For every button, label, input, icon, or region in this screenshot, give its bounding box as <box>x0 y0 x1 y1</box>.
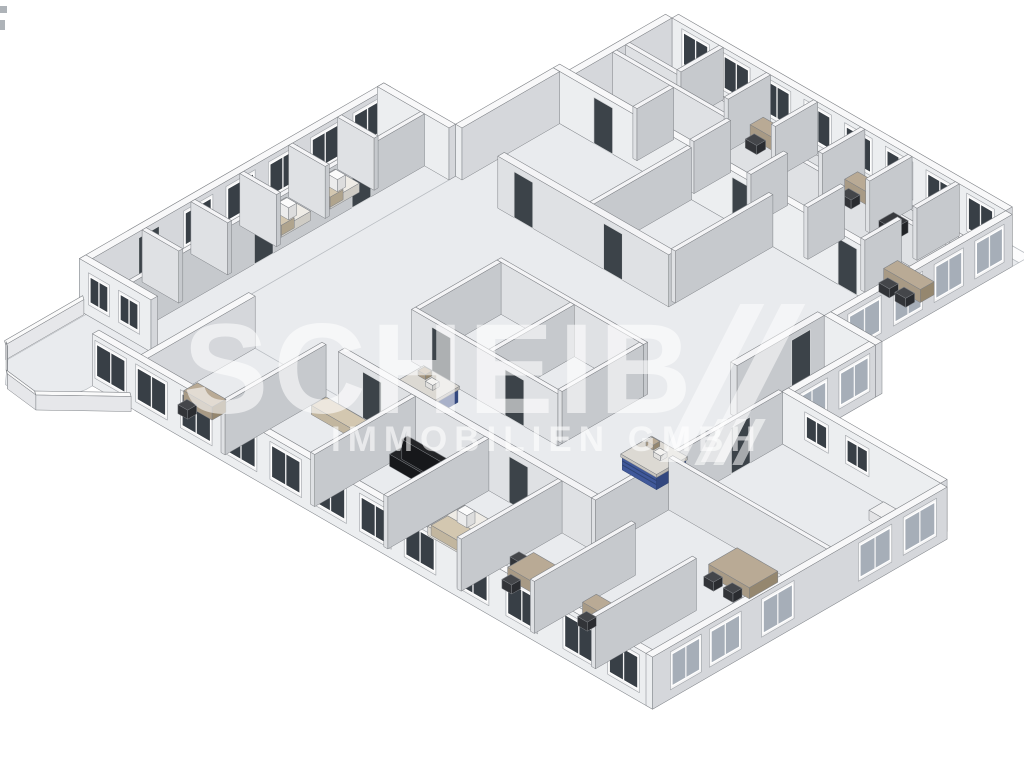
isometric-floorplan <box>0 0 1024 774</box>
scan-artifact <box>0 6 7 13</box>
floorplan-image: SCHEIB IMMOBILIEN GMBH <box>0 0 1024 774</box>
scan-artifact <box>0 20 5 30</box>
